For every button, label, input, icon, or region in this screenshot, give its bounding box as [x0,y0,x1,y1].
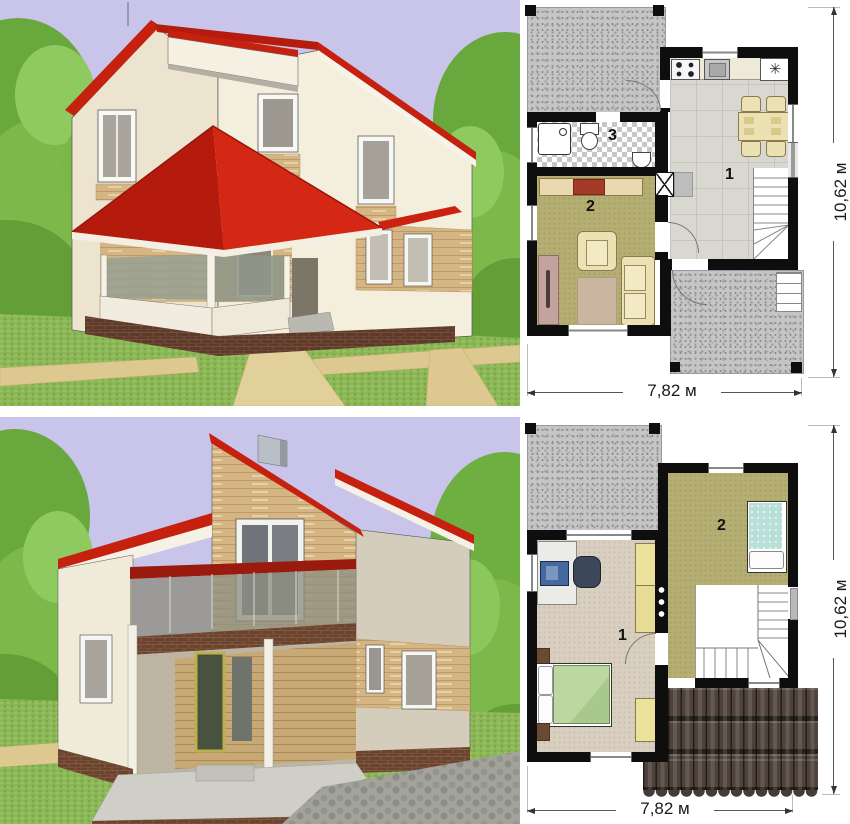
render-3d-entrance-view [0,417,520,824]
window [590,752,632,762]
shower-icon [538,123,571,155]
dining-chair [741,141,761,157]
dimension-height-label: 10,62 м [831,143,850,241]
render-entrance-svg [0,417,520,824]
lower-roof [668,688,818,759]
first-floor-plan: ✳ 1 3 [520,0,850,406]
veranda-glass-left [104,254,208,300]
window [748,678,780,688]
window [708,463,744,473]
room-number-bedroom1: 1 [618,627,627,645]
office-chair [573,556,601,588]
veranda-glass-right [215,254,288,302]
room-number-bedroom2: 2 [717,517,726,535]
cabinet-row [539,178,643,196]
door-opening [596,112,620,122]
room-number-living: 2 [586,198,595,216]
dining-chair [766,96,786,112]
door-sidelight [232,657,252,741]
terrace-steps [776,272,802,312]
lower-roof [643,759,818,790]
toilet-bowl [581,132,598,150]
window [788,104,798,144]
kitchen-sink-icon [704,59,730,80]
balcony-terrace [527,425,662,532]
wall-vent-dots [658,585,665,619]
corner-post [207,250,215,314]
window-sill [788,142,798,178]
door-opening [672,259,708,270]
post-right [284,256,290,302]
dining-chair [741,96,761,112]
door-leaf [790,588,798,620]
duct-box [674,172,693,197]
door-mat [196,765,254,781]
left-wing-window [80,635,112,703]
window [566,530,632,540]
render-garden-svg [0,0,520,406]
dining-table [738,112,790,141]
sofa [621,256,655,326]
tv-cabinet [538,255,559,325]
sand-strip [0,743,58,767]
chimney-shaft-icon [655,172,674,197]
monitor-icon [540,561,569,586]
armchair [577,231,617,271]
stairs [695,585,789,678]
room-number-bathroom: 3 [608,127,617,145]
wood-band-right [356,639,470,711]
stair-landing-strip [668,585,695,678]
front-door [196,653,224,751]
dimension-height-label: 10,62 м [831,560,850,658]
door-opening [660,80,670,108]
bed-double [536,663,612,727]
bed-double [747,501,787,573]
dimension-width-label: 7,82 м [623,381,721,401]
window-right [356,136,396,222]
project-sheet: ✳ 1 3 [0,0,850,824]
second-floor-plan: 2 1 [520,417,850,824]
window [527,127,537,163]
stairs [753,168,789,259]
window [568,325,628,336]
window [527,554,537,592]
render-3d-garden-view [0,0,520,406]
entrance-doorway [292,258,318,318]
room-number-kitchen: 1 [725,166,734,184]
dining-chair [766,141,786,157]
window [527,205,537,241]
window [702,47,738,58]
porch-column-left [128,625,137,777]
dimension-width-label: 7,82 м [616,799,714,819]
post-left [101,255,107,303]
stove-icon [671,59,700,80]
freezer-icon: ✳ [760,58,790,81]
rug [577,277,617,325]
